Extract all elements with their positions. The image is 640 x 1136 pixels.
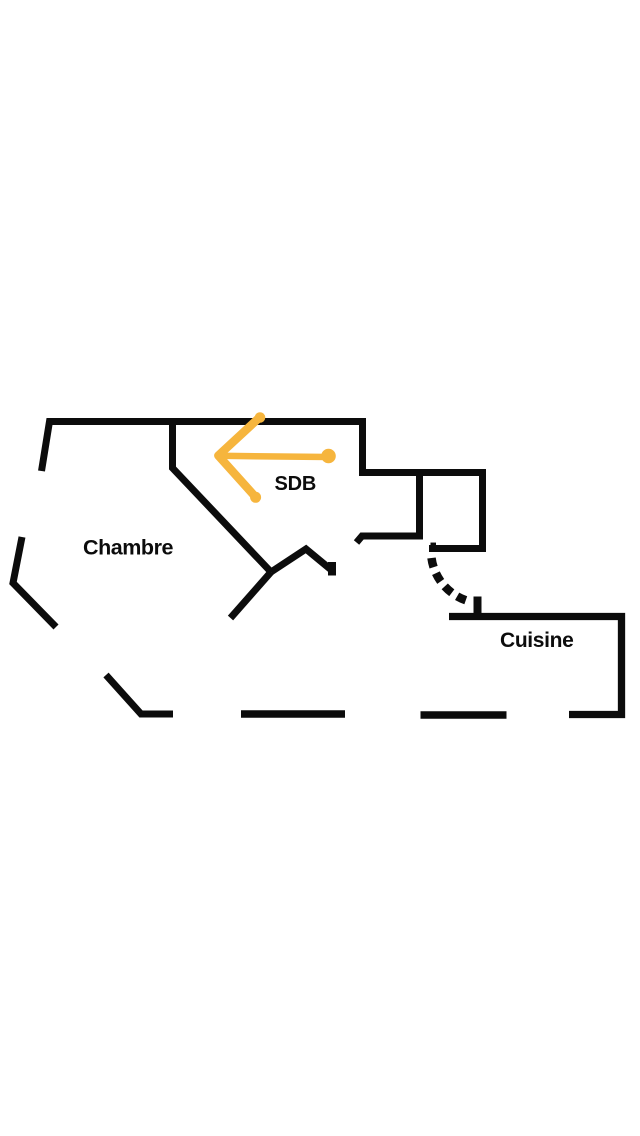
svg-text:SDB: SDB xyxy=(275,473,317,495)
svg-text:Cuisine: Cuisine xyxy=(500,629,573,652)
svg-text:Chambre: Chambre xyxy=(83,536,174,560)
